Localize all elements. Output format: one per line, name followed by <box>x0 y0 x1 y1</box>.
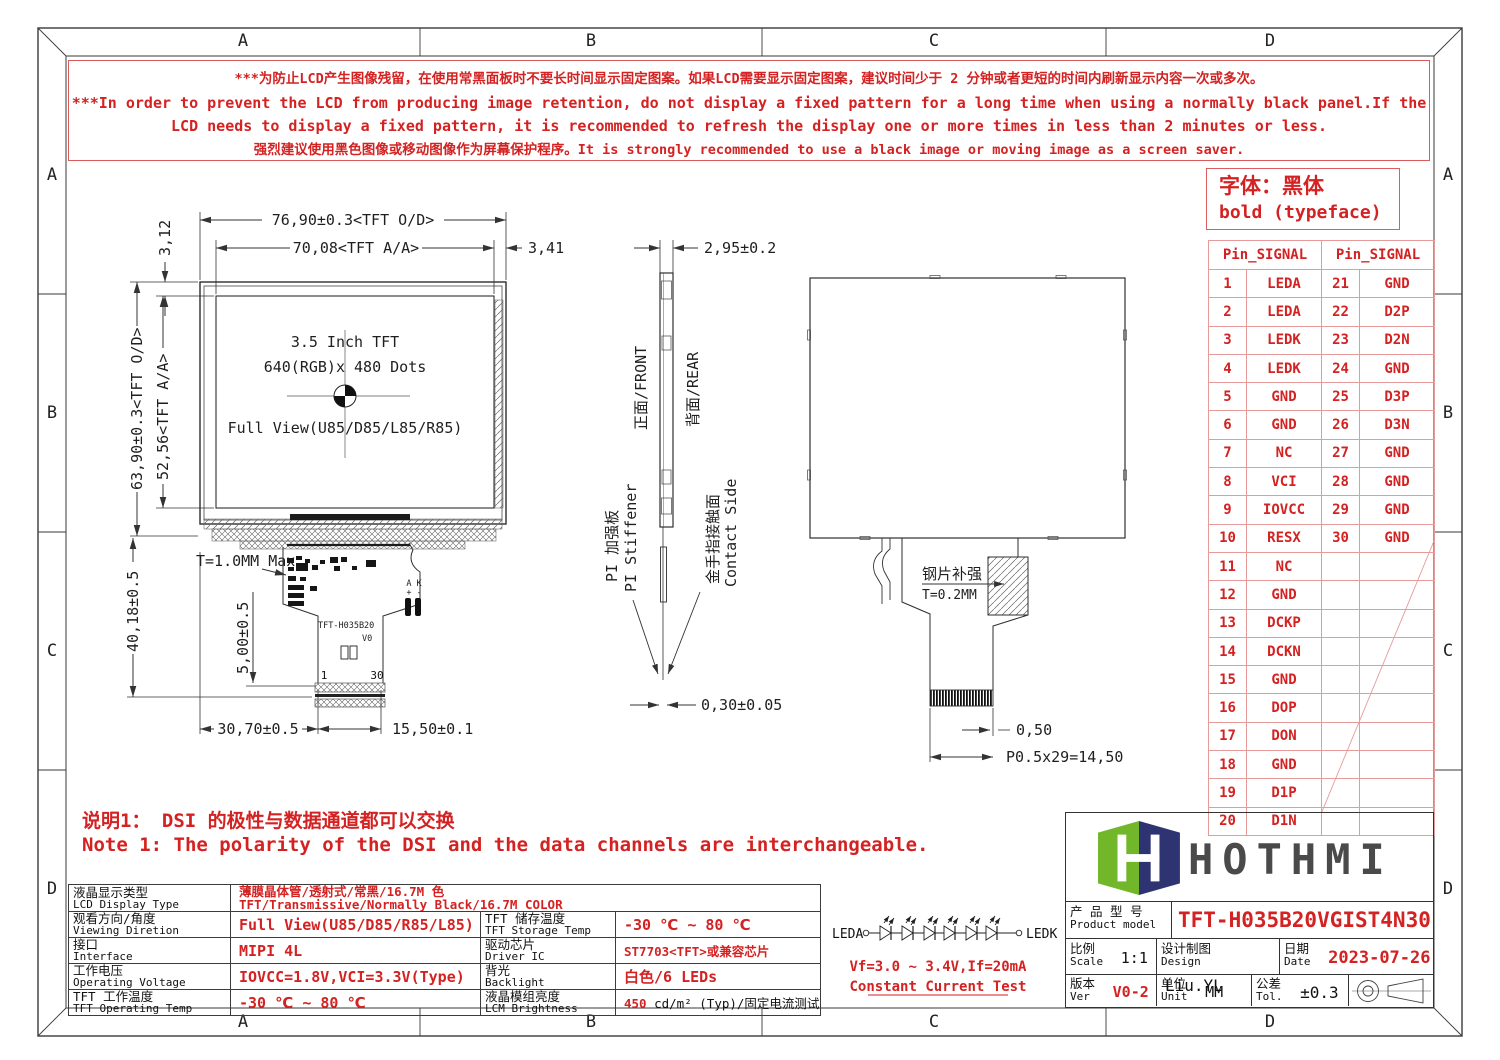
engineering-drawing-page: { "frame":{ "top_zones":["A","B","C","D"… <box>0 0 1500 1060</box>
pin-cell: 17 <box>1209 722 1247 750</box>
font-note-cn: 字体：黑体 <box>1219 173 1399 200</box>
pi-stiffener-label-cn: PI 加强板 <box>603 510 621 582</box>
pin-cell: DOP <box>1247 694 1322 722</box>
brand-wordmark: HOTHMI <box>1188 835 1394 884</box>
pin-cell: 10 <box>1209 524 1247 552</box>
fpc-components <box>287 556 376 606</box>
pin-cell: 19 <box>1209 779 1247 807</box>
note-1-en: Note 1: The polarity of the DSI and the … <box>82 834 928 856</box>
unit-cell: 单位Unit MM <box>1156 974 1251 1006</box>
scale-value: 1:1 <box>1113 941 1148 967</box>
fpc-model-label: TFT-H035B20 <box>318 621 374 631</box>
pin-cell: 7 <box>1209 439 1247 467</box>
fpc-version-label: V0 <box>362 634 372 644</box>
logo-row: HOTHMI <box>1066 813 1433 901</box>
warning-line: 强烈建议使用黑色图像或移动图像作为屏幕保护程序。It is strongly r… <box>69 139 1429 163</box>
connector-fingers <box>930 690 993 706</box>
pin-cell: D3P <box>1360 383 1435 411</box>
pin-cell: DON <box>1247 722 1322 750</box>
spec-row-display-type: 液晶显示类型LCD Display Type 薄膜晶体管/透射式/常黑/16.7… <box>69 885 821 912</box>
spec-value: -30 ℃ ~ 80 ℃ <box>616 912 821 938</box>
design-cell: 设计制图Design Liu.YL <box>1156 938 1279 974</box>
pin-cell: 13 <box>1209 609 1247 637</box>
pin-cell: 4 <box>1209 354 1247 382</box>
warning-line: LCD needs to display a fixed pattern, it… <box>69 115 1429 139</box>
warning-line: ***为防止LCD产生图像残留，在使用常黑面板时不要长时间显示固定图案。如果LC… <box>69 68 1429 92</box>
model-value-cell: TFT-H035B20VGIST4N30 <box>1171 901 1433 938</box>
pin-cell: 14 <box>1209 637 1247 665</box>
pin-cell: NC <box>1247 552 1322 580</box>
zone-letter: D <box>1260 31 1280 51</box>
fpc-logo-mark <box>341 646 348 659</box>
bottom-crosshatch-band <box>212 529 496 541</box>
pin-cell: 3 <box>1209 326 1247 354</box>
resolution-label: 640(RGB)x 480 Dots <box>264 358 427 376</box>
pin-row: 7NC27GND <box>1209 439 1435 467</box>
pin-cell: D3N <box>1360 411 1435 439</box>
steel-stiffener-thickness: T=0.2MM <box>922 588 977 603</box>
pin-row: 8VCI28GND <box>1209 468 1435 496</box>
connector-hatch-top <box>315 683 385 692</box>
dim-tail-drop: 5,00±0.5 <box>234 602 252 674</box>
zone-letter: B <box>1438 403 1458 423</box>
pi-stiffener-profile <box>661 547 667 602</box>
pin-row: 9IOVCC29GND <box>1209 496 1435 524</box>
dim-module-thickness: 2,95±0.2 <box>704 239 776 257</box>
pin-cell: 16 <box>1209 694 1247 722</box>
front-view-drawing: 3.5 Inch TFT 640(RGB)x 480 Dots Full Vie… <box>90 190 650 770</box>
zone-letter: A <box>42 165 62 185</box>
pin-cell: D2P <box>1360 298 1435 326</box>
dim-tail-width: 15,50±0.1 <box>392 720 473 738</box>
pin-cell: NC <box>1247 439 1322 467</box>
brightness-value: 450 <box>624 996 647 1011</box>
image-retention-warning: ***为防止LCD产生图像残留，在使用常黑面板时不要长时间显示固定图案。如果LC… <box>68 60 1430 161</box>
pin-cell: 15 <box>1209 666 1247 694</box>
pin-cell: GND <box>1247 383 1322 411</box>
led-diode-icon <box>966 916 980 940</box>
pin-cell: 23 <box>1322 326 1360 354</box>
model-label-cell: 产 品 型 号Product model <box>1066 901 1171 938</box>
spec-value-en: TFT/Transmissive/Normally Black/16.7M CO… <box>239 898 820 911</box>
front-side-label: 正面/FRONT <box>632 346 650 430</box>
dim-width-aa: 70,08<TFT A/A> <box>293 239 419 257</box>
pin-row: 4LEDK24GND <box>1209 354 1435 382</box>
spec-label-en: LCD Display Type <box>73 899 230 911</box>
zone-letter: D <box>1438 879 1458 899</box>
connector-bar <box>315 694 385 697</box>
pin-cell: 8 <box>1209 468 1247 496</box>
side-profile-body <box>660 273 673 527</box>
right-hatch-band <box>495 300 503 508</box>
projection-cell <box>1348 974 1433 1006</box>
pin-signal-header-left: Pin_SIGNAL <box>1209 241 1322 270</box>
dim-tail-offset: 30,70±0.5 <box>217 720 298 738</box>
zone-letter: B <box>42 403 62 423</box>
hothmi-logo <box>1094 819 1182 897</box>
pin-cell: GND <box>1247 411 1322 439</box>
spec-row-viewing: 观看方向/角度Viewing Diretion Full View(U85/D8… <box>69 912 821 938</box>
pin-cell: 2 <box>1209 298 1247 326</box>
led-circuit: LEDA LEDK Vf=3.0 ~ 3.4V,If=20mA Constant… <box>828 895 1070 1000</box>
dim-gap-right: 3,41 <box>528 239 564 257</box>
led-anode-label: LEDA <box>832 927 863 942</box>
pin-cell: 9 <box>1209 496 1247 524</box>
pin-cell: GND <box>1360 439 1435 467</box>
zone-letter: D <box>42 879 62 899</box>
spec-row-interface: 接口Interface MIPI 4L 驱动芯片Driver IC ST7703… <box>69 938 821 964</box>
note-1-cn: 说明1： DSI 的极性与数据通道都可以交换 <box>82 806 455 833</box>
pin-cell: 18 <box>1209 751 1247 779</box>
pin-cell: IOVCC <box>1247 496 1322 524</box>
zone-letter: A <box>1438 165 1458 185</box>
led-symbols <box>880 916 1000 940</box>
contact-side-label-en: Contact Side <box>722 479 740 587</box>
zone-letter: C <box>924 1012 944 1032</box>
pin-cell: 29 <box>1322 496 1360 524</box>
unit-value: MM <box>1197 977 1223 1001</box>
tolerance-value: ±0.3 <box>1292 977 1339 1002</box>
fpc-bend-line1 <box>874 538 882 604</box>
version-cell: 版本Ver V0-2 <box>1066 974 1156 1006</box>
rear-side-label: 背面/REAR <box>684 351 702 427</box>
pin-cell: 11 <box>1209 552 1247 580</box>
led-cathode-label: LEDK <box>1026 927 1057 942</box>
pin-cell: VCI <box>1247 468 1322 496</box>
pin-cell: LEDA <box>1247 270 1322 298</box>
brightness-unit: cd/m² (Typ)/固定电流测试 <box>654 996 819 1011</box>
fpc-bend-line2 <box>882 538 890 600</box>
dim-width-od: 76,90±0.3<TFT O/D> <box>272 211 435 229</box>
warning-line: ***In order to prevent the LCD from prod… <box>69 92 1429 116</box>
steel-stiffener-label: 钢片补强 <box>922 565 982 583</box>
fpc-outline-right <box>383 543 420 683</box>
pin-cell: RESX <box>1247 524 1322 552</box>
dim-finger-total: P0.5x29=14,50 <box>1006 748 1123 766</box>
pin-cell: GND <box>1247 581 1322 609</box>
pin-cell: 5 <box>1209 383 1247 411</box>
rear-tail-left <box>902 538 930 690</box>
active-area-outline <box>216 296 494 508</box>
product-model: TFT-H035B20VGIST4N30 <box>1172 908 1431 932</box>
pin1-label: 1 <box>321 669 328 682</box>
led-test-label: Constant Current Test <box>849 979 1026 995</box>
viewing-label: Full View(U85/D85/L85/R85) <box>228 419 463 437</box>
spec-value: Full View(U85/D85/R85/L85) <box>231 912 481 938</box>
pin30-label: 30 <box>370 669 383 682</box>
led-diode-icon <box>902 916 916 940</box>
rear-tail-right <box>993 615 1028 690</box>
zone-letter: C <box>1438 641 1458 661</box>
dim-gap-top: 3,12 <box>156 220 174 256</box>
pin-cell: 1 <box>1209 270 1247 298</box>
panel-size-label: 3.5 Inch TFT <box>291 333 399 351</box>
pin-row: 6GND26D3N <box>1209 411 1435 439</box>
pin-cell: 12 <box>1209 581 1247 609</box>
dim-height-od: 63,90±0.3<TFT O/D> <box>128 327 146 490</box>
scale-cell: 比例Scale 1:1 <box>1066 938 1156 974</box>
dim-height-aa: 52,56<TFT A/A> <box>154 354 172 480</box>
font-note-en: bold (typeface) <box>1219 200 1399 226</box>
pin-cell: D2N <box>1360 326 1435 354</box>
led-spec-label: Vf=3.0 ~ 3.4V,If=20mA <box>849 959 1027 975</box>
pin-cell: LEDK <box>1247 354 1322 382</box>
pin-row: 3LEDK23D2N <box>1209 326 1435 354</box>
pin-cell: GND <box>1360 468 1435 496</box>
cathode-pad <box>415 598 421 616</box>
rear-outline <box>810 278 1125 538</box>
pin-cell: 24 <box>1322 354 1360 382</box>
led-diode-icon <box>986 916 1000 940</box>
anode-pad <box>405 598 411 616</box>
tolerance-cell: 公差Tol. ±0.3 <box>1251 974 1348 1006</box>
pin-table-header-row: Pin_SIGNAL Pin_SIGNAL <box>1209 241 1435 270</box>
pin-cell: GND <box>1360 354 1435 382</box>
rear-view-drawing: 钢片补强 T=0.2MM 0,50 P0.5x29=14,50 <box>795 250 1145 770</box>
dim-finger-pitch: 0,50 <box>1016 721 1052 739</box>
side-view-drawing: 2,95±0.2 0,30±0.05 正面/FRONT 背面/REAR PI S… <box>580 220 800 740</box>
spec-label-cn: 液晶显示类型 <box>73 886 230 899</box>
dim-fpc-thickness: 0,30±0.05 <box>701 696 782 714</box>
bottom-hatch-band <box>204 519 502 529</box>
pin-cell: 6 <box>1209 411 1247 439</box>
pin-cell: GND <box>1247 751 1322 779</box>
pin-signal-header-right: Pin_SIGNAL <box>1322 241 1435 270</box>
date-cell: 日期Date 2023-07-26 <box>1279 938 1433 974</box>
zone-letter: B <box>581 31 601 51</box>
pin-row: 5GND25D3P <box>1209 383 1435 411</box>
thickness-note: T=1.0MM Max <box>196 552 295 570</box>
pin-row: 2LEDA22D2P <box>1209 298 1435 326</box>
pin-cell: 21 <box>1322 270 1360 298</box>
pin-cell: DCKN <box>1247 637 1322 665</box>
pin-row: 1LEDA21GND <box>1209 270 1435 298</box>
connector-hatch-bottom <box>315 699 385 707</box>
zone-letter: D <box>1260 1012 1280 1032</box>
version-value: V0-2 <box>1105 977 1149 1001</box>
pin-cell: 25 <box>1322 383 1360 411</box>
font-note-box: 字体：黑体 bold (typeface) <box>1206 168 1400 230</box>
pin-cell: 22 <box>1322 298 1360 326</box>
driver-ic-bar <box>290 514 410 520</box>
pin-cell: LEDA <box>1247 298 1322 326</box>
pin-cell: LEDK <box>1247 326 1322 354</box>
pi-stiffener-label-en: PI Stiffener <box>622 484 640 592</box>
led-diode-icon <box>944 916 958 940</box>
polarity-label: + - <box>406 588 421 598</box>
spec-table: 液晶显示类型LCD Display Type 薄膜晶体管/透射式/常黑/16.7… <box>68 884 821 1016</box>
pin-cell: GND <box>1360 496 1435 524</box>
led-diode-icon <box>924 916 938 940</box>
pin-cell: GND <box>1247 666 1322 694</box>
pin-cell: D1P <box>1247 779 1322 807</box>
zone-letter: C <box>924 31 944 51</box>
led-diode-icon <box>880 916 894 940</box>
pin-table-diagonal <box>1321 541 1434 814</box>
zone-letter: C <box>42 641 62 661</box>
pin-cell: DCKP <box>1247 609 1322 637</box>
date-value: 2023-07-26 <box>1320 940 1430 968</box>
zone-letter: A <box>233 31 253 51</box>
spec-row-voltage: 工作电压Operating Voltage IOVCC=1.8V,VCI=3.3… <box>69 964 821 990</box>
title-block: HOTHMI 产 品 型 号Product model TFT-H035B20V… <box>1065 812 1434 1008</box>
pin-cell: 28 <box>1322 468 1360 496</box>
spec-row-temp: TFT 工作温度TFT Operating Temp -30 ℃ ~ 80 ℃ … <box>69 990 821 1016</box>
pin-cell: GND <box>1360 270 1435 298</box>
third-angle-projection-icon <box>1349 975 1434 1007</box>
dim-fpc-height: 40,18±0.5 <box>124 571 142 652</box>
contact-side-label-cn: 金手指接触面 <box>704 494 722 584</box>
pin-cell: 26 <box>1322 411 1360 439</box>
steel-stiffener-hatch <box>988 557 1028 615</box>
pin-cell: 27 <box>1322 439 1360 467</box>
